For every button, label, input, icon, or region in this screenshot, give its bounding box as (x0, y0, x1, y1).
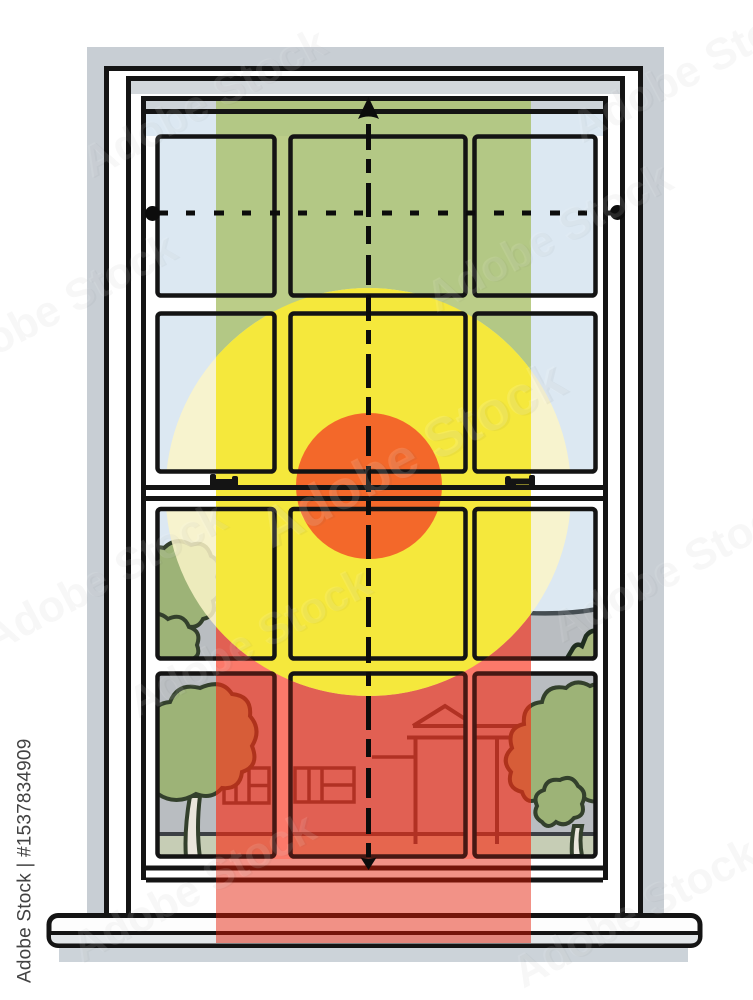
svg-text:Adobe Stock | #1537834909: Adobe Stock | #1537834909 (15, 739, 36, 983)
